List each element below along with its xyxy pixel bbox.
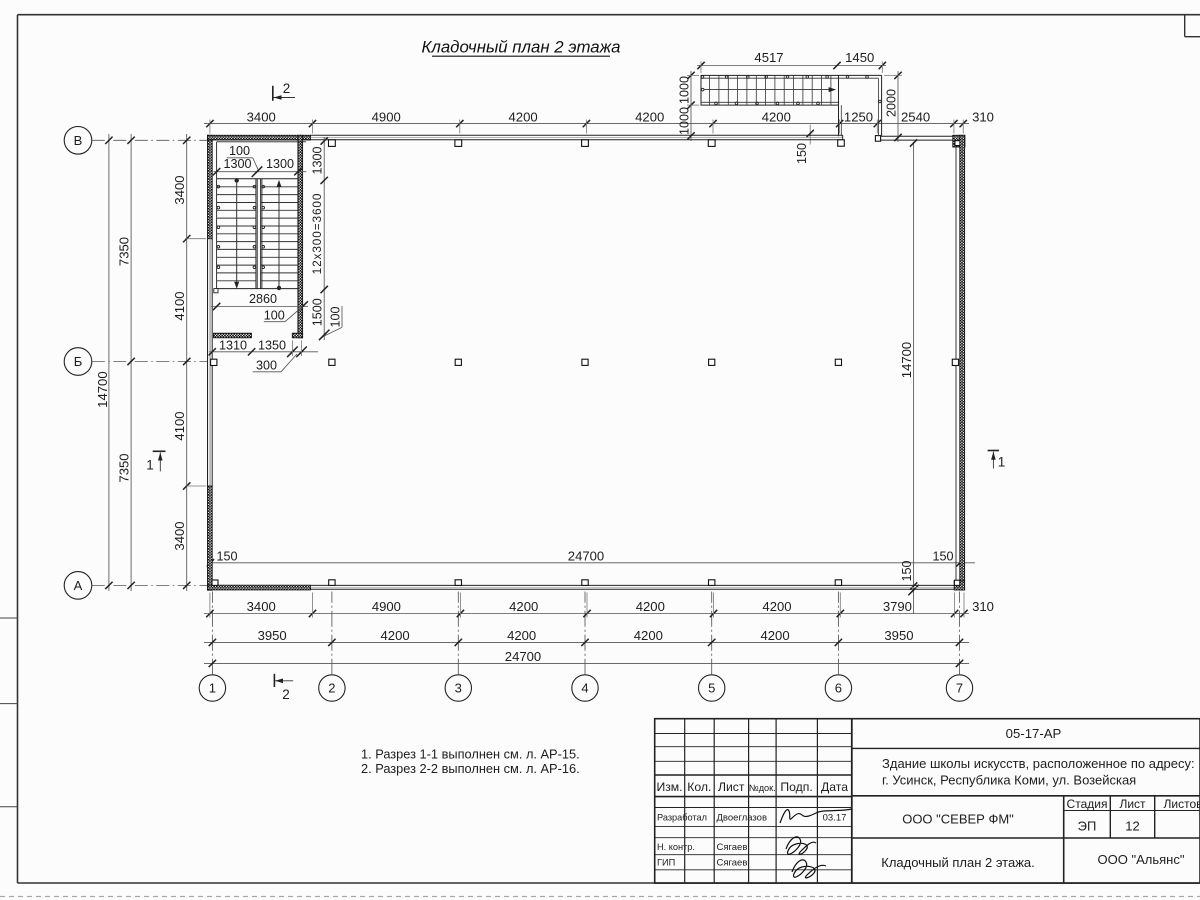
svg-text:2860: 2860 bbox=[249, 292, 277, 306]
svg-text:24700: 24700 bbox=[568, 549, 604, 564]
svg-text:Стадия: Стадия bbox=[1067, 797, 1108, 811]
svg-text:Здание школы искусств, располо: Здание школы искусств, расположенное по … bbox=[882, 756, 1195, 771]
svg-text:В: В bbox=[74, 133, 83, 148]
svg-text:100: 100 bbox=[329, 306, 343, 327]
svg-text:310: 310 bbox=[972, 599, 994, 614]
svg-text:Кол.: Кол. bbox=[687, 780, 711, 794]
svg-text:№док.: №док. bbox=[749, 783, 776, 793]
svg-text:14700: 14700 bbox=[95, 371, 110, 407]
svg-text:4: 4 bbox=[581, 681, 588, 696]
svg-text:Б: Б bbox=[74, 354, 83, 369]
svg-text:4200: 4200 bbox=[762, 599, 791, 614]
svg-text:6: 6 bbox=[835, 681, 842, 696]
svg-text:2: 2 bbox=[328, 681, 335, 696]
svg-text:4100: 4100 bbox=[172, 291, 187, 320]
svg-text:4900: 4900 bbox=[372, 109, 401, 124]
svg-text:ООО "СЕВЕР ФМ": ООО "СЕВЕР ФМ" bbox=[902, 812, 1014, 827]
svg-text:1350: 1350 bbox=[258, 338, 286, 352]
svg-text:4200: 4200 bbox=[509, 109, 538, 124]
svg-text:1300: 1300 bbox=[310, 146, 324, 174]
svg-text:1000: 1000 bbox=[677, 76, 691, 104]
svg-text:3950: 3950 bbox=[884, 628, 913, 643]
svg-text:Дата: Дата bbox=[821, 780, 848, 794]
svg-text:2540: 2540 bbox=[901, 109, 930, 124]
svg-text:Сягаев: Сягаев bbox=[717, 858, 748, 869]
svg-text:300: 300 bbox=[256, 359, 277, 373]
svg-text:5: 5 bbox=[708, 681, 715, 696]
svg-text:05-17-АР: 05-17-АР bbox=[1006, 726, 1062, 741]
svg-text:4900: 4900 bbox=[372, 599, 401, 614]
svg-text:4200: 4200 bbox=[634, 628, 663, 643]
svg-text:Двоеглазов: Двоеглазов bbox=[717, 813, 768, 824]
svg-text:1: 1 bbox=[998, 455, 1006, 470]
svg-text:Подп.: Подп. bbox=[780, 780, 812, 794]
svg-text:4200: 4200 bbox=[760, 628, 789, 643]
svg-text:ГИП: ГИП bbox=[657, 858, 675, 868]
svg-text:ЭП: ЭП bbox=[1078, 819, 1097, 834]
svg-text:4100: 4100 bbox=[172, 411, 187, 440]
svg-text:ООО "Альянс": ООО "Альянс" bbox=[1098, 852, 1185, 867]
svg-text:Сягаев: Сягаев bbox=[717, 842, 748, 853]
svg-text:Разработал: Разработал bbox=[657, 813, 707, 823]
svg-text:3: 3 bbox=[455, 681, 462, 696]
svg-text:150: 150 bbox=[216, 550, 237, 564]
svg-text:310: 310 bbox=[972, 109, 994, 124]
svg-text:Кладочный план 2 этажа: Кладочный план 2 этажа bbox=[422, 38, 621, 57]
svg-text:4200: 4200 bbox=[762, 109, 791, 124]
svg-text:г. Усинск, Республика Коми, ул: г. Усинск, Республика Коми, ул. Возейска… bbox=[882, 773, 1136, 788]
svg-text:3790: 3790 bbox=[883, 599, 912, 614]
svg-text:150: 150 bbox=[900, 560, 914, 581]
svg-text:1300: 1300 bbox=[223, 157, 251, 171]
svg-text:1: 1 bbox=[146, 458, 154, 473]
svg-text:3400: 3400 bbox=[247, 599, 276, 614]
svg-text:3400: 3400 bbox=[172, 521, 187, 550]
svg-text:1310: 1310 bbox=[219, 338, 247, 352]
svg-text:4200: 4200 bbox=[381, 628, 410, 643]
svg-text:4200: 4200 bbox=[636, 599, 665, 614]
svg-text:4200: 4200 bbox=[509, 599, 538, 614]
svg-text:Изм.: Изм. bbox=[656, 780, 682, 794]
svg-text:2000: 2000 bbox=[884, 89, 898, 117]
svg-text:4200: 4200 bbox=[635, 109, 664, 124]
svg-text:7: 7 bbox=[956, 681, 963, 696]
svg-text:Н. контр.: Н. контр. bbox=[657, 842, 695, 852]
svg-text:03.17: 03.17 bbox=[823, 813, 847, 824]
svg-text:А: А bbox=[74, 578, 83, 593]
svg-text:1250: 1250 bbox=[844, 109, 873, 124]
svg-text:Лист: Лист bbox=[718, 780, 745, 794]
svg-text:2: 2 bbox=[283, 81, 291, 96]
svg-text:Кладочный план 2 этажа.: Кладочный план 2 этажа. bbox=[881, 855, 1035, 870]
svg-text:12х300=3600: 12х300=3600 bbox=[310, 193, 324, 275]
svg-text:7350: 7350 bbox=[116, 453, 131, 482]
svg-text:14700: 14700 bbox=[899, 342, 914, 378]
svg-text:1: 1 bbox=[209, 681, 216, 696]
svg-text:150: 150 bbox=[795, 143, 809, 164]
svg-text:3950: 3950 bbox=[258, 628, 287, 643]
svg-text:3400: 3400 bbox=[247, 109, 276, 124]
svg-text:3400: 3400 bbox=[172, 175, 187, 204]
svg-text:Листов: Листов bbox=[1164, 797, 1200, 811]
svg-text:24700: 24700 bbox=[505, 649, 541, 664]
svg-text:1. Разрез 1-1 выполнен см. л.: 1. Разрез 1-1 выполнен см. л. АР-15. bbox=[361, 747, 580, 762]
svg-text:150: 150 bbox=[932, 550, 953, 564]
svg-text:2. Разрез 2-2 выполнен см. л.: 2. Разрез 2-2 выполнен см. л. АР-16. bbox=[361, 761, 580, 776]
svg-text:Лист: Лист bbox=[1119, 797, 1146, 811]
svg-text:100: 100 bbox=[264, 309, 285, 323]
svg-text:1000: 1000 bbox=[677, 107, 691, 135]
svg-text:100: 100 bbox=[229, 144, 250, 158]
svg-text:2: 2 bbox=[282, 687, 290, 702]
svg-text:4517: 4517 bbox=[754, 50, 783, 65]
svg-text:1450: 1450 bbox=[845, 50, 874, 65]
svg-text:1500: 1500 bbox=[310, 298, 324, 326]
svg-text:12: 12 bbox=[1125, 819, 1139, 834]
svg-text:1300: 1300 bbox=[266, 157, 294, 171]
svg-text:4200: 4200 bbox=[507, 628, 536, 643]
svg-text:7350: 7350 bbox=[116, 237, 131, 266]
